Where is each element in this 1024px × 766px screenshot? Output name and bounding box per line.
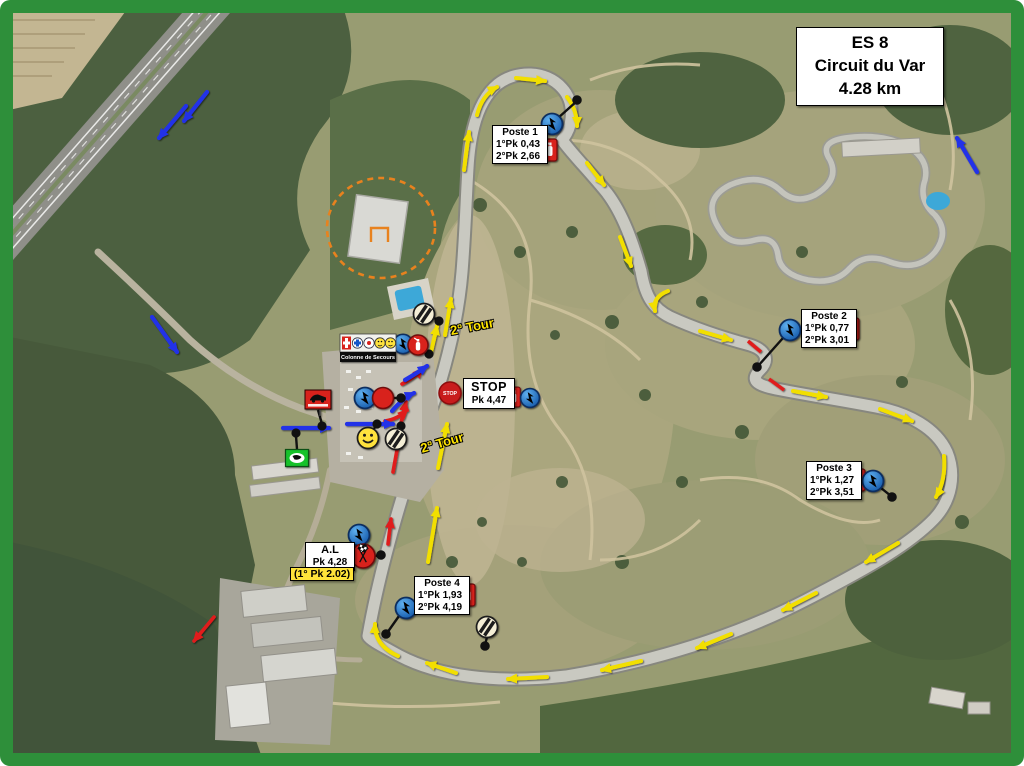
poste2-radio-icon — [780, 320, 801, 341]
stop-radio-icon — [521, 389, 540, 408]
svg-text:STOP: STOP — [443, 391, 458, 397]
poste3-radio-icon — [863, 471, 884, 492]
start-control-icon — [373, 388, 394, 409]
poste3-label-box: Poste 3 1°Pk 1,27 2°Pk 3,51 — [806, 461, 862, 500]
poste2-pk1: 1°Pk 0,77 — [805, 323, 853, 335]
start-timing-icon — [386, 429, 407, 450]
stage-number: ES 8 — [805, 32, 935, 55]
poste4-name: Poste 4 — [418, 578, 466, 590]
poste4-timing-icon — [477, 617, 498, 638]
tour2-timing-icon — [414, 304, 435, 325]
stop-label-box: STOP Pk 4,47 — [463, 378, 515, 409]
poste1-pk2: 2°Pk 2,66 — [496, 151, 544, 163]
poste2-pk2: 2°Pk 3,01 — [805, 335, 853, 347]
poste2-name: Poste 2 — [805, 311, 853, 323]
poste4-label-box: Poste 4 1°Pk 1,93 2°Pk 4,19 — [414, 576, 470, 615]
poste4-pk2: 2°Pk 4,19 — [418, 602, 466, 614]
stage-length: 4.28 km — [805, 78, 935, 101]
poste2-label-box: Poste 2 1°Pk 0,77 2°Pk 3,01 — [801, 309, 857, 348]
secours-extinguisher-icon — [408, 335, 428, 355]
svg-text:Colonne de Secours: Colonne de Secours — [341, 355, 395, 361]
poste3-pk1: 1°Pk 1,27 — [810, 475, 858, 487]
poste1-name: Poste 1 — [496, 127, 544, 139]
colonne-de-secours-strip: Colonne de Secours — [340, 334, 396, 362]
stop-pk: Pk 4,47 — [467, 395, 511, 407]
poste1-pk1: 1°Pk 0,43 — [496, 139, 544, 151]
poste1-label-box: Poste 1 1°Pk 0,43 2°Pk 2,66 — [492, 125, 548, 164]
poste4-pk1: 1°Pk 1,93 — [418, 590, 466, 602]
stage-title-box: ES 8 Circuit du Var 4.28 km — [796, 27, 944, 106]
start-smiley-icon — [358, 428, 379, 449]
stage-name: Circuit du Var — [805, 55, 935, 78]
al-title: A.L — [309, 544, 351, 557]
poste3-name: Poste 3 — [810, 463, 858, 475]
edge-watermark-text: es — [2, 257, 13, 268]
poste3-pk2: 2°Pk 3,51 — [810, 487, 858, 499]
stop-title: STOP — [467, 380, 511, 395]
rally-stage-map: STOP Colonne de Secours ES 8 Circuit du … — [0, 0, 1024, 766]
stop-sign-icon: STOP — [439, 382, 461, 404]
al-first-pass-note: (1° Pk 2.02) — [290, 567, 354, 581]
green-car-sign-icon — [286, 450, 309, 467]
